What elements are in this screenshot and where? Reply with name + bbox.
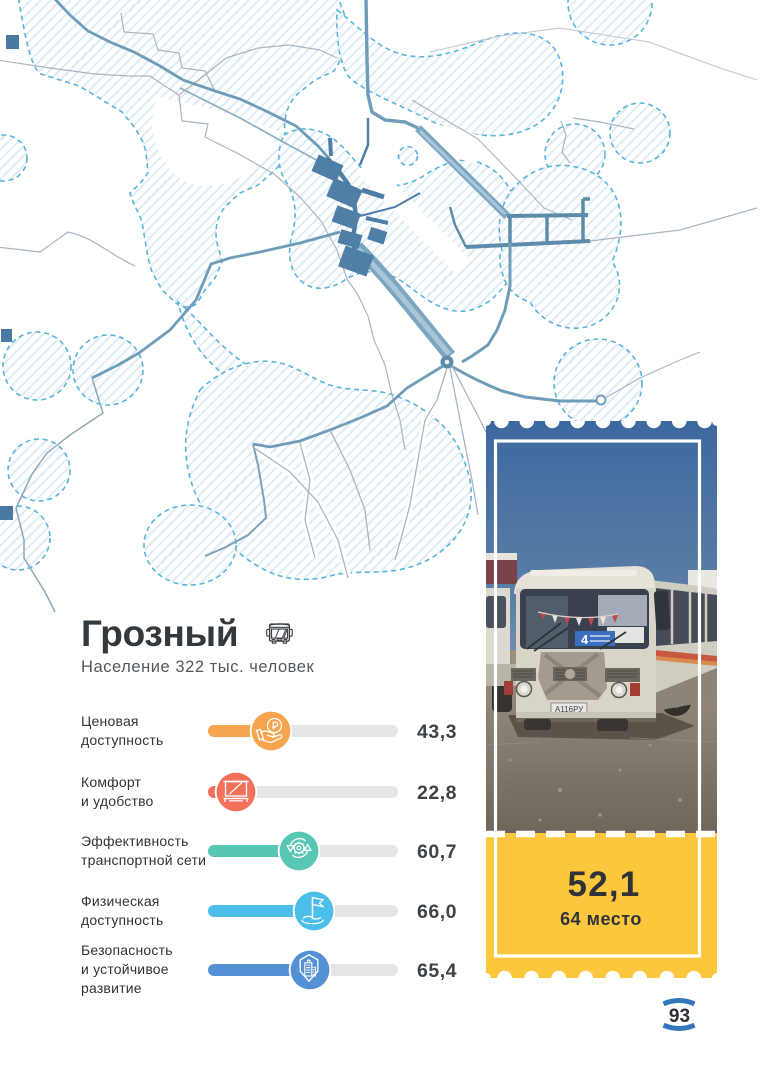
- svg-text:52,1: 52,1: [568, 865, 641, 904]
- svg-text:4: 4: [581, 632, 589, 647]
- svg-text:64 место: 64 место: [560, 909, 642, 929]
- svg-text:93: 93: [669, 1006, 690, 1027]
